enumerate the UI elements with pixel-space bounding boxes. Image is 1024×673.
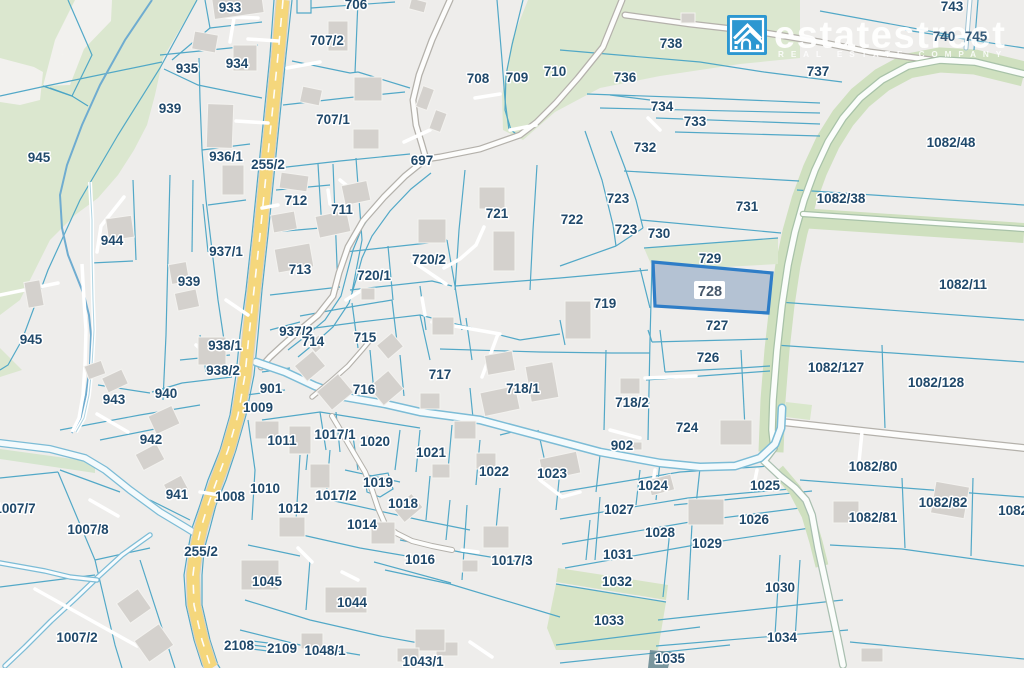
svg-text:718/2: 718/2 [615,395,649,410]
svg-text:720/2: 720/2 [412,252,446,267]
svg-text:941: 941 [166,487,189,502]
svg-text:731: 731 [736,199,759,214]
svg-text:1017/1: 1017/1 [314,427,356,442]
svg-text:1021: 1021 [416,445,447,460]
svg-text:938/2: 938/2 [206,363,240,378]
svg-text:1011: 1011 [267,433,297,448]
svg-text:713: 713 [289,262,312,277]
svg-text:1035: 1035 [655,651,686,666]
svg-text:730: 730 [648,226,671,241]
svg-text:724: 724 [676,420,699,435]
svg-text:734: 734 [651,99,674,114]
svg-text:715: 715 [354,330,377,345]
svg-text:728: 728 [698,284,722,300]
svg-text:1017/2: 1017/2 [315,488,356,503]
svg-text:1082/80: 1082/80 [849,459,898,474]
svg-text:740: 740 [933,29,956,44]
svg-text:1033: 1033 [594,613,625,628]
svg-text:716: 716 [353,382,376,397]
svg-text:902: 902 [611,438,634,453]
svg-text:255/2: 255/2 [184,544,218,559]
svg-text:934: 934 [226,56,249,71]
svg-text:1082/81: 1082/81 [849,510,898,525]
svg-text:710: 710 [544,64,567,79]
svg-text:945: 945 [28,150,51,165]
svg-text:1082/38: 1082/38 [817,191,866,206]
svg-text:1043/1: 1043/1 [402,654,444,668]
svg-text:707/2: 707/2 [310,33,344,48]
svg-text:942: 942 [140,432,163,447]
svg-text:901: 901 [260,381,283,396]
svg-text:939: 939 [159,101,182,116]
svg-text:1027: 1027 [604,502,634,517]
svg-text:2108: 2108 [224,638,255,653]
svg-text:938/1: 938/1 [208,338,242,353]
svg-text:733: 733 [684,114,707,129]
svg-text:727: 727 [706,318,729,333]
svg-text:1007/7: 1007/7 [0,501,36,516]
svg-text:1031: 1031 [603,547,634,562]
svg-text:939: 939 [178,274,201,289]
svg-text:722: 722 [561,212,584,227]
svg-text:935: 935 [176,61,199,76]
svg-text:1010: 1010 [250,481,280,496]
svg-text:743: 743 [941,0,964,14]
svg-text:945: 945 [20,332,43,347]
svg-text:712: 712 [285,193,308,208]
svg-text:718/1: 718/1 [506,381,540,396]
svg-text:708: 708 [467,71,490,86]
svg-text:2109: 2109 [267,641,297,656]
svg-text:723: 723 [615,222,638,237]
svg-text:726: 726 [697,350,720,365]
svg-text:933: 933 [219,0,242,15]
svg-text:1018: 1018 [388,496,419,511]
svg-text:1028: 1028 [645,525,676,540]
svg-text:REAL ESTATE COMPANY: REAL ESTATE COMPANY [778,50,1008,59]
svg-text:1082/11: 1082/11 [939,277,988,292]
svg-text:1082/82: 1082/82 [919,495,968,510]
svg-text:1012: 1012 [278,501,308,516]
svg-text:737: 737 [807,64,830,79]
svg-text:1044: 1044 [337,595,368,610]
svg-text:1026: 1026 [739,512,770,527]
svg-text:1082/128: 1082/128 [908,375,965,390]
svg-text:940: 940 [155,386,178,401]
svg-text:1014: 1014 [347,517,378,532]
svg-text:719: 719 [594,296,617,311]
svg-text:255/2: 255/2 [251,157,285,172]
svg-text:1045: 1045 [252,574,283,589]
svg-text:1082/127: 1082/127 [808,360,864,375]
svg-text:745: 745 [965,29,988,44]
svg-text:720/1: 720/1 [357,268,391,283]
svg-text:707/1: 707/1 [316,112,350,127]
svg-text:943: 943 [103,392,126,407]
svg-text:1025: 1025 [750,478,781,493]
svg-text:1034: 1034 [767,630,798,645]
svg-text:1019: 1019 [363,475,393,490]
svg-text:944: 944 [101,233,124,248]
svg-text:1082/: 1082/ [998,503,1024,518]
svg-text:1082/48: 1082/48 [927,135,976,150]
svg-text:1007/8: 1007/8 [67,522,109,537]
svg-text:1032: 1032 [602,574,632,589]
svg-text:937/1: 937/1 [209,244,243,259]
svg-text:1030: 1030 [765,580,795,595]
svg-text:723: 723 [607,191,630,206]
svg-text:1007/2: 1007/2 [56,630,97,645]
svg-text:936/1: 936/1 [209,149,243,164]
svg-text:1008: 1008 [215,489,246,504]
svg-text:738: 738 [660,36,683,51]
svg-text:697: 697 [411,153,434,168]
svg-text:1023: 1023 [537,466,568,481]
svg-text:1016: 1016 [405,552,436,567]
svg-text:1009: 1009 [243,400,273,415]
svg-text:1017/3: 1017/3 [491,553,533,568]
svg-text:736: 736 [614,70,637,85]
svg-text:1029: 1029 [692,536,722,551]
svg-text:1020: 1020 [360,434,390,449]
svg-text:721: 721 [486,206,509,221]
svg-text:717: 717 [429,367,452,382]
svg-text:1022: 1022 [479,464,509,479]
svg-text:706: 706 [345,0,368,12]
svg-text:1048/1: 1048/1 [304,643,346,658]
svg-text:714: 714 [302,334,325,349]
svg-text:711: 711 [331,202,353,217]
svg-text:709: 709 [506,70,529,85]
svg-text:1024: 1024 [638,478,669,493]
svg-text:732: 732 [634,140,657,155]
svg-text:729: 729 [699,251,722,266]
